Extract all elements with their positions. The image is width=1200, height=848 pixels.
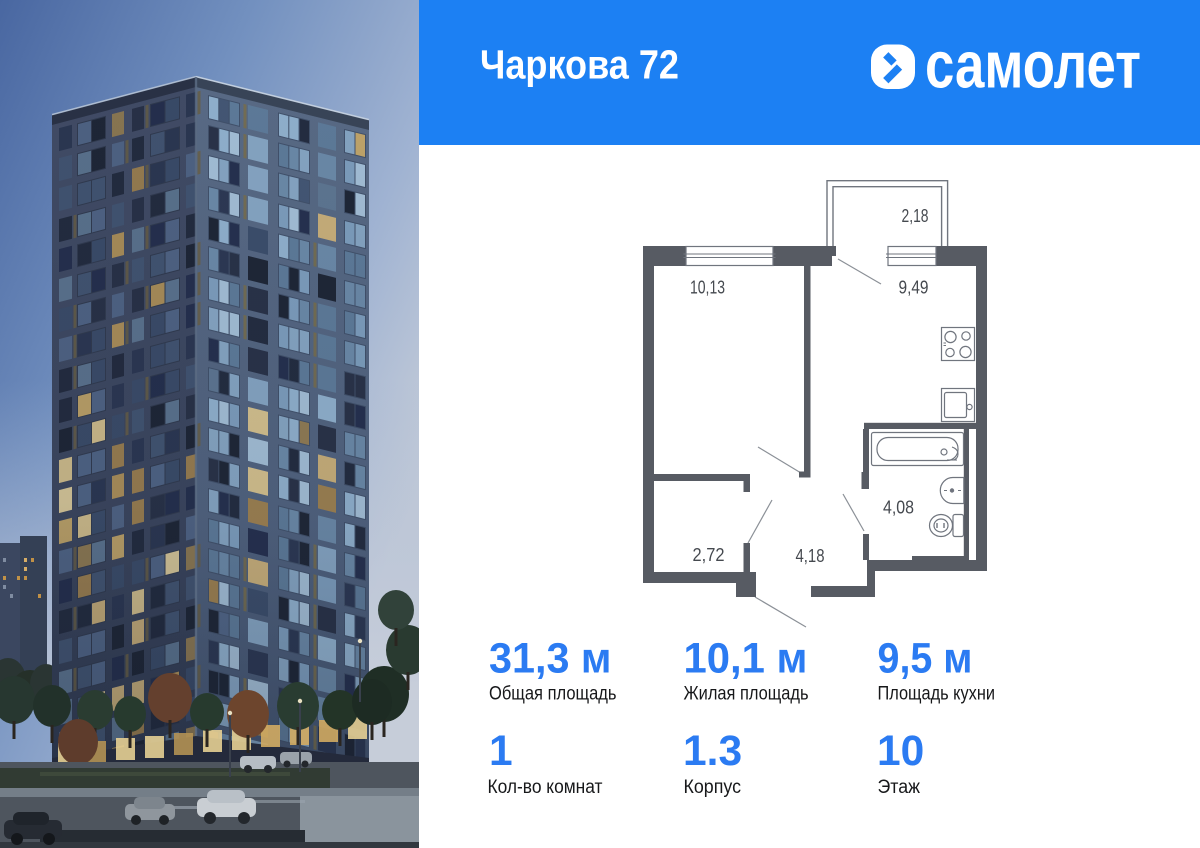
svg-text:4,18: 4,18 xyxy=(796,545,825,566)
svg-text:Этаж: Этаж xyxy=(878,777,921,798)
svg-text:10,13: 10,13 xyxy=(690,277,725,298)
svg-text:Общая площадь: Общая площадь xyxy=(489,684,617,705)
svg-text:9,49: 9,49 xyxy=(899,277,929,298)
svg-text:Чаркова 72: Чаркова 72 xyxy=(480,42,679,88)
svg-text:10,1 м: 10,1 м xyxy=(684,636,808,683)
svg-text:10: 10 xyxy=(877,728,924,775)
svg-text:Корпус: Корпус xyxy=(684,777,742,798)
svg-text:2,18: 2,18 xyxy=(902,205,929,226)
svg-text:1: 1 xyxy=(489,728,513,775)
svg-text:Кол-во комнат: Кол-во комнат xyxy=(488,777,603,798)
svg-text:4,08: 4,08 xyxy=(883,497,914,518)
svg-text:9,5 м: 9,5 м xyxy=(878,636,973,683)
svg-text:Площадь кухни: Площадь кухни xyxy=(878,684,996,705)
svg-text:31,3 м: 31,3 м xyxy=(489,636,612,683)
svg-text:2,72: 2,72 xyxy=(693,544,725,565)
svg-text:Жилая площадь: Жилая площадь xyxy=(684,684,809,705)
svg-text:1.3: 1.3 xyxy=(683,728,742,775)
svg-text:самолет: самолет xyxy=(925,28,1141,102)
